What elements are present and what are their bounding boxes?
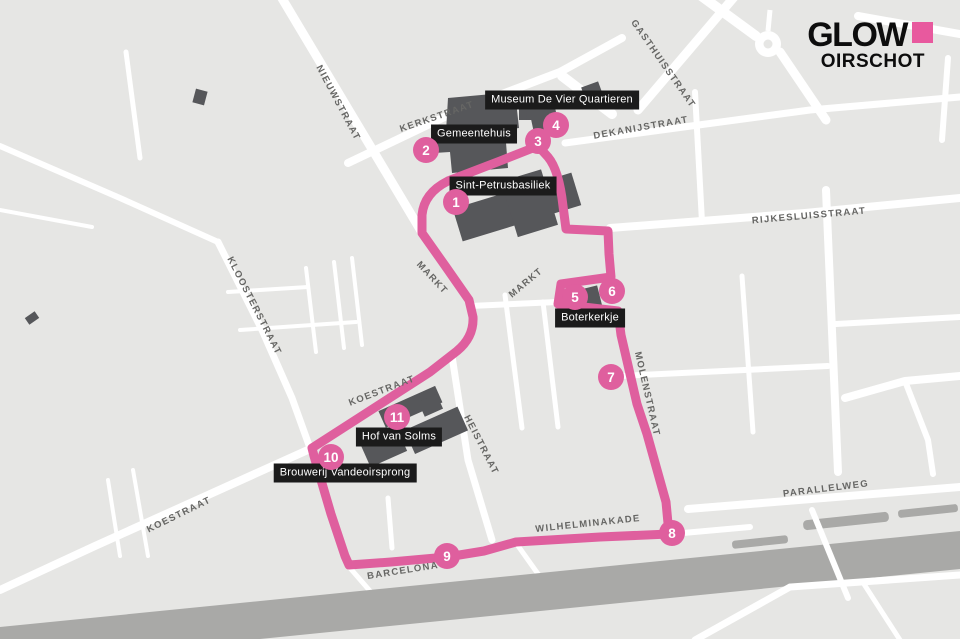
logo-pink-square [912, 22, 933, 43]
poi-label-museum-de-vier-quartieren: Museum De Vier Quartieren [485, 91, 639, 110]
route-stop-2[interactable]: 2 [413, 137, 439, 163]
route-stop-9[interactable]: 9 [434, 543, 460, 569]
logo-subtitle: OIRSCHOT [821, 52, 925, 71]
route-stop-8[interactable]: 8 [659, 520, 685, 546]
poi-label-hof-van-solms: Hof van Solms [356, 428, 442, 447]
route-stop-6[interactable]: 6 [599, 278, 625, 304]
route-stop-4[interactable]: 4 [543, 112, 569, 138]
route-stop-7[interactable]: 7 [598, 364, 624, 390]
route-stop-10[interactable]: 10 [318, 444, 344, 470]
route-stop-11[interactable]: 11 [384, 404, 410, 430]
route-stop-5[interactable]: 5 [562, 284, 588, 310]
poi-label-boterkerkje: Boterkerkje [555, 309, 625, 328]
map-base-graphics [0, 0, 960, 639]
route-stop-1[interactable]: 1 [443, 189, 469, 215]
glow-oirschot-logo: GLOW OIRSCHOT [807, 22, 933, 71]
poi-label-brouwerij-vandeoirsprong: Brouwerij Vandeoirsprong [274, 464, 417, 483]
logo-row: GLOW [807, 22, 933, 50]
poi-label-gemeentehuis: Gemeentehuis [431, 125, 517, 144]
logo-title: GLOW [807, 22, 907, 50]
city-map: NIEUWSTRAATKERKSTRAATGASTHUISSTRAATDEKAN… [0, 0, 960, 639]
